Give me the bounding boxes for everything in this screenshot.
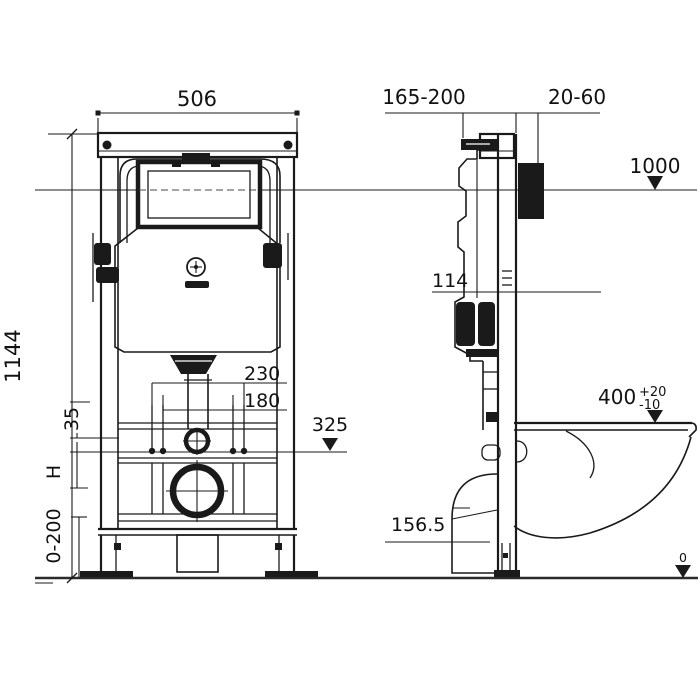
technical-drawing: 506 1144 230 180 35 H 0-200 325 bbox=[0, 0, 700, 680]
dim-0-200-label: 0-200 bbox=[43, 508, 65, 563]
flush-mechanism-a bbox=[456, 302, 475, 346]
dim-20-60-label: 20-60 bbox=[548, 85, 606, 109]
toilet-bowl-profile bbox=[514, 423, 696, 538]
dim-400-label: 400 bbox=[598, 385, 636, 409]
flush-plate-box bbox=[518, 163, 544, 219]
drawing-canvas: 506 1144 230 180 35 H 0-200 325 bbox=[0, 0, 700, 680]
drain-housing bbox=[177, 535, 218, 572]
floor-zero-arrow bbox=[675, 565, 691, 578]
dim-180-label: 180 bbox=[244, 390, 280, 412]
window-clip-right bbox=[211, 162, 220, 167]
top-bolt-hole-left bbox=[103, 141, 112, 150]
drain-elbow-block bbox=[452, 474, 498, 573]
window-clip-left bbox=[172, 162, 181, 167]
dim-1000-arrow bbox=[647, 176, 663, 190]
dim-114-label: 114 bbox=[432, 270, 468, 292]
front-view bbox=[80, 133, 318, 577]
dim-506-end-left bbox=[96, 111, 101, 116]
dim-325-arrow bbox=[322, 438, 338, 451]
dim-165-200-label: 165-200 bbox=[382, 85, 466, 109]
flush-funnel bbox=[170, 355, 217, 374]
left-leg-lock-screw bbox=[114, 543, 121, 550]
dim-156-label: 156.5 bbox=[391, 514, 445, 536]
right-foot-plate bbox=[265, 571, 318, 577]
flush-mechanism-b bbox=[478, 302, 495, 346]
dim-230-label: 230 bbox=[244, 363, 280, 385]
cistern-tank bbox=[115, 228, 280, 352]
left-foot-plate bbox=[80, 571, 133, 577]
side-view bbox=[452, 134, 696, 577]
dim-h-label: H bbox=[43, 465, 65, 479]
top-bolt-hole-right bbox=[284, 141, 293, 150]
access-window-tab bbox=[182, 153, 210, 162]
dim-325-label: 325 bbox=[312, 414, 348, 436]
dim-1144-label: 1144 bbox=[1, 329, 25, 382]
dim-400-arrow bbox=[647, 410, 663, 423]
floor-zero-label: 0 bbox=[679, 550, 687, 565]
access-window bbox=[138, 162, 260, 227]
left-wall-bracket bbox=[94, 243, 111, 265]
fill-valve-center bbox=[194, 265, 198, 269]
dim-35-label: 35 bbox=[61, 407, 83, 431]
valve-slot bbox=[185, 281, 209, 288]
right-wall-bracket bbox=[263, 243, 282, 268]
side-pipe-clamp bbox=[486, 412, 497, 422]
tank-bottom-flange bbox=[466, 349, 497, 357]
side-foot-screw bbox=[503, 553, 508, 558]
side-foot-plate bbox=[494, 570, 520, 577]
dim-506-label: 506 bbox=[177, 87, 217, 111]
right-leg-lock-screw bbox=[275, 543, 282, 550]
dim-506-end-right bbox=[295, 111, 300, 116]
dimension-annotations: 506 1144 230 180 35 H 0-200 325 bbox=[1, 85, 691, 583]
dim-1000-label: 1000 bbox=[630, 154, 681, 178]
